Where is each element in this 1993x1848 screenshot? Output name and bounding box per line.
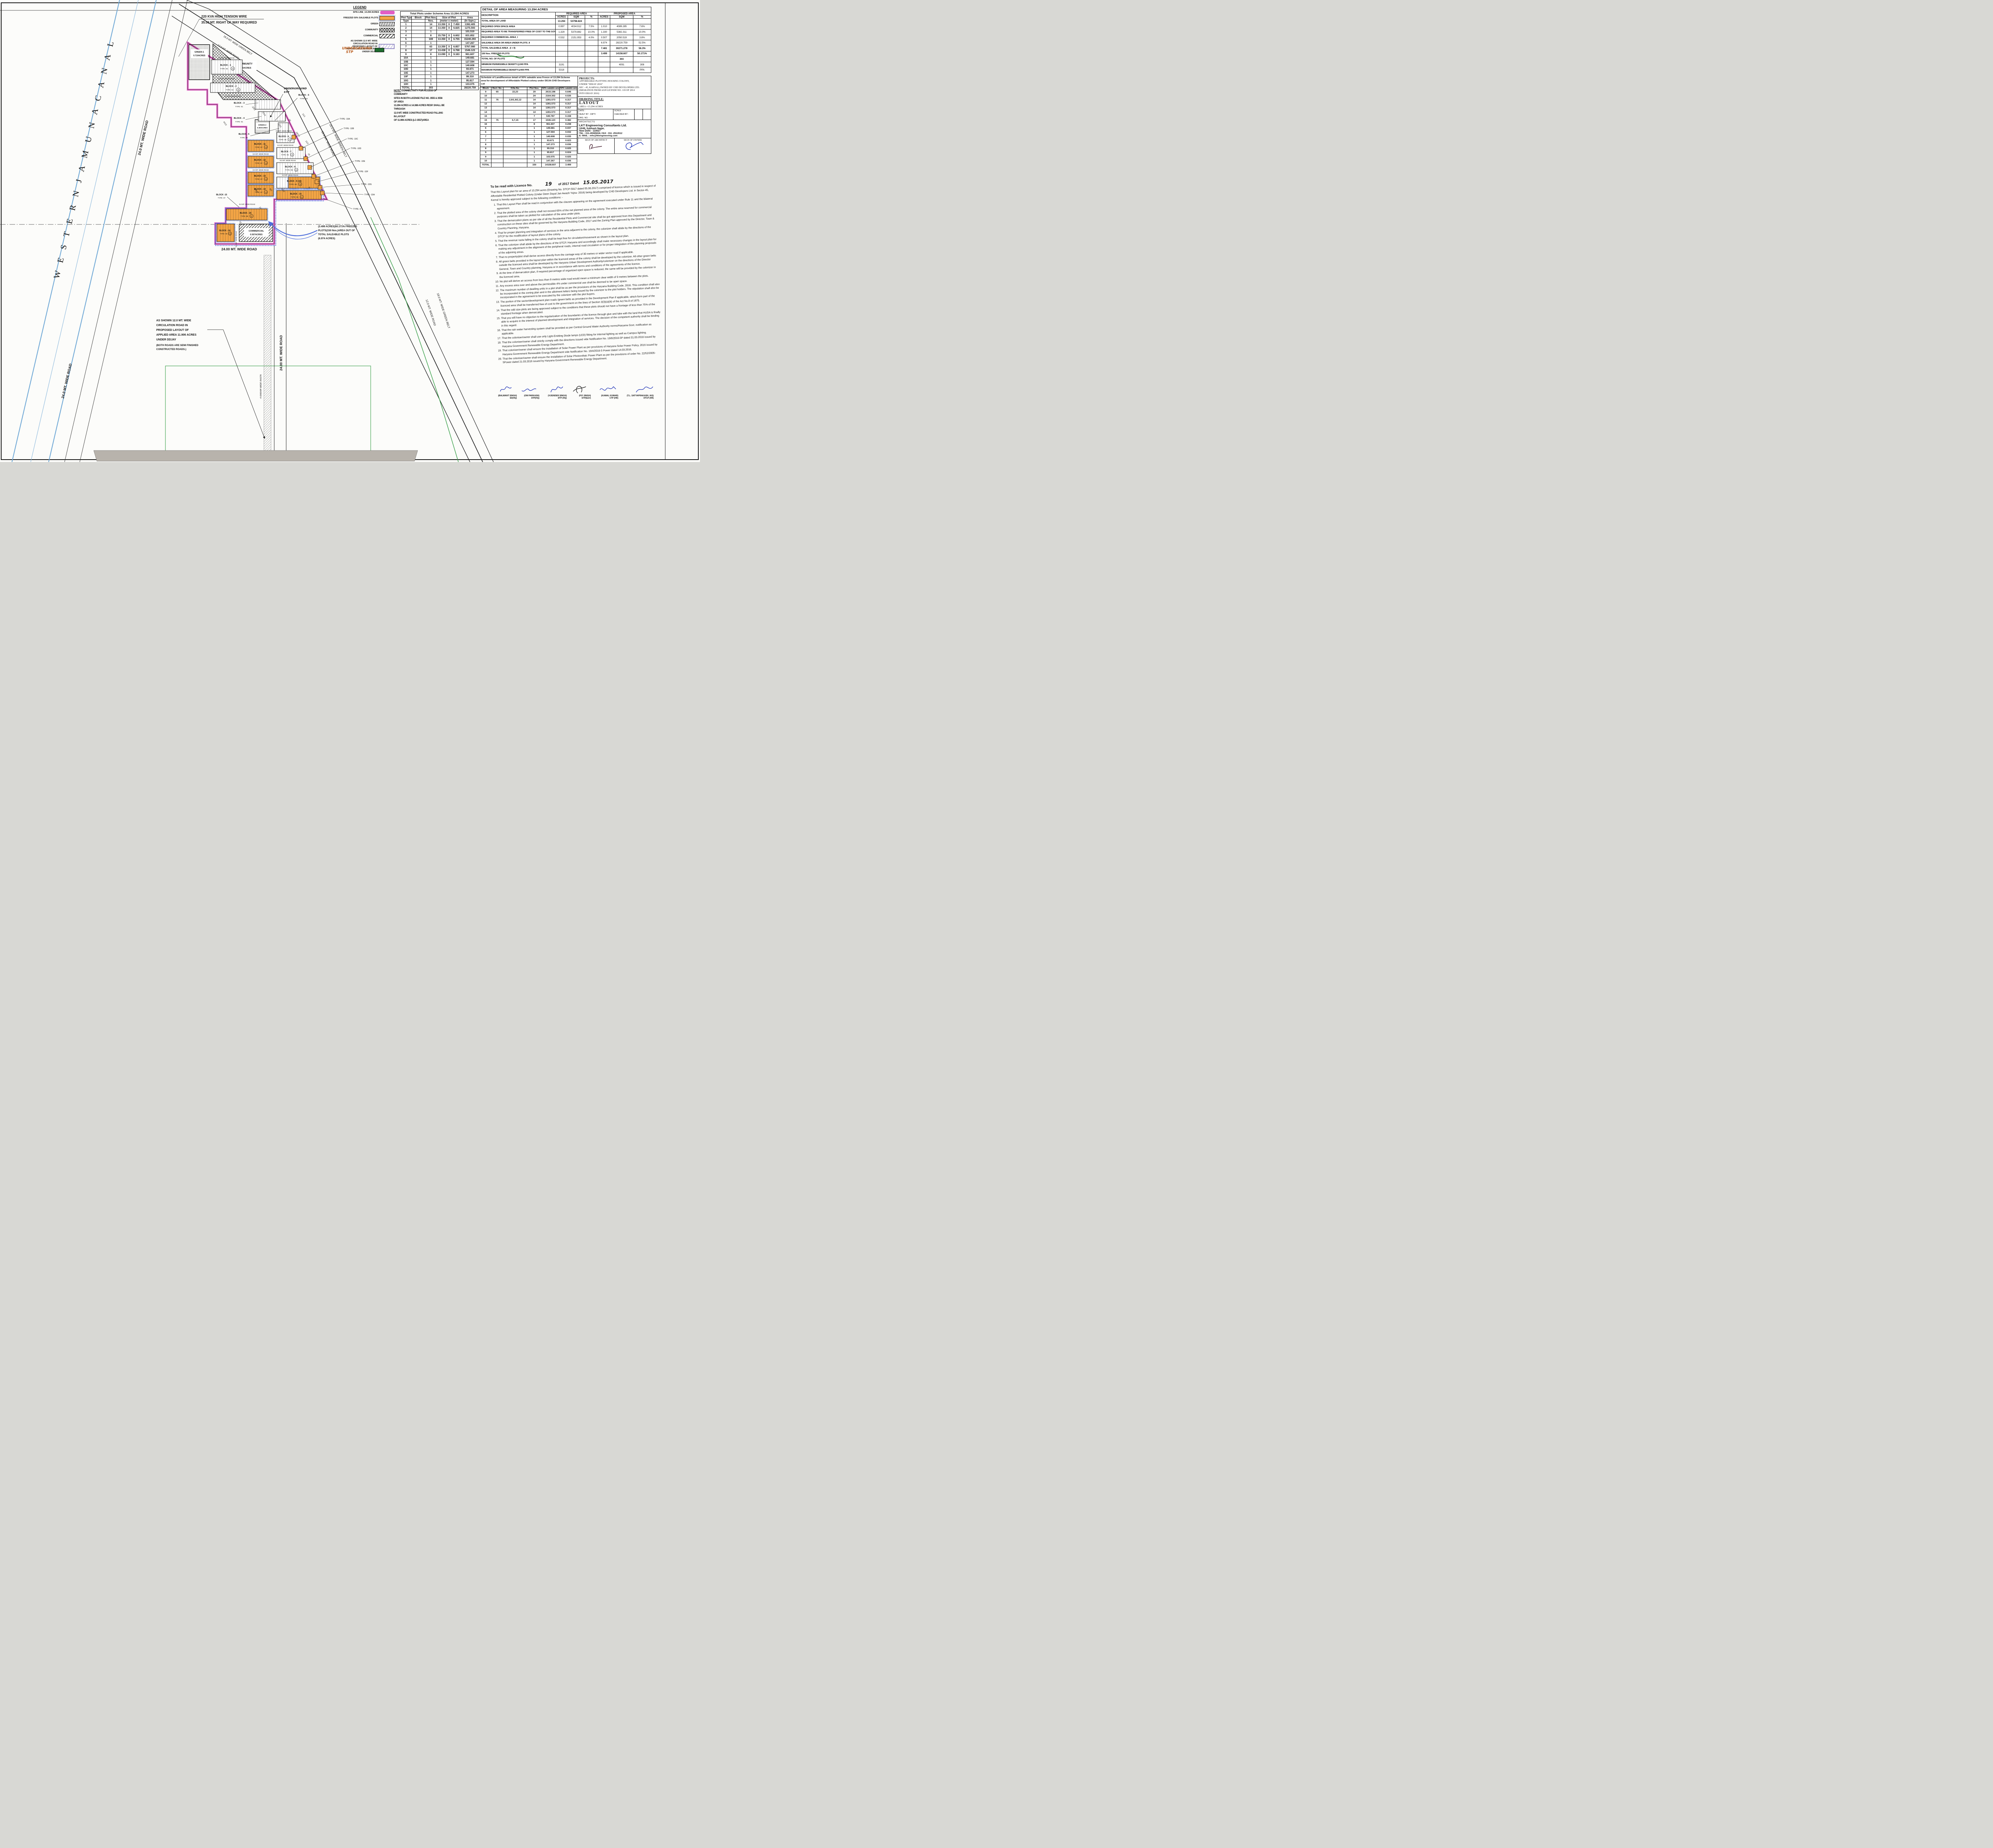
schedule-cell <box>491 147 503 151</box>
schedule-cell: 75 <box>491 118 503 122</box>
detail-value-cell <box>585 19 598 24</box>
plots-cell <box>411 26 425 30</box>
plots-cell <box>411 45 425 49</box>
schedule-row: 7193.6710.023 <box>480 139 577 143</box>
info-empty-cell-2 <box>643 109 651 120</box>
plots-cell: 10E <box>401 71 412 75</box>
svg-text:26: 26 <box>291 154 293 156</box>
plots-header-cell <box>411 20 425 23</box>
plots-cell: X <box>446 26 451 30</box>
plots-cell: 1 <box>425 67 437 71</box>
plots-cell: 1 <box>425 79 437 82</box>
svg-text:TYPE -05: TYPE -05 <box>291 196 299 198</box>
schedule-cell: 1 <box>527 143 542 147</box>
plots-cell <box>411 23 425 26</box>
detail-value-cell: 1.330 <box>598 29 610 35</box>
schedule-cell: 1281.573 <box>542 106 560 110</box>
svg-text:18: 18 <box>289 139 291 141</box>
schedule-cell: 0.317 <box>560 98 577 102</box>
svg-text:TYPE -10D: TYPE -10D <box>351 147 361 150</box>
detail-value-cell <box>568 51 585 57</box>
detail-desc-cell: REQUIRED OPEN SPACE AREA <box>481 24 556 29</box>
detail-row: REQUIRED OPEN SPACE AREA0.9974034.9127.5… <box>481 24 651 29</box>
schedule-cell: 14 <box>527 102 542 106</box>
plots-cell: 10C <box>401 64 412 67</box>
plots-cell: 1392.405 <box>461 23 478 26</box>
plots-cell <box>437 79 462 82</box>
legend-title: LEGEND <box>353 6 395 9</box>
licence-conditions: That this Layout Plan shall be read in c… <box>491 197 663 365</box>
schedule-cell: 1 <box>527 151 542 155</box>
detail-value-cell <box>585 45 598 51</box>
info-grid: DATE : DEALT BY : DIPTI DRG. NO. : SCALE… <box>578 109 651 120</box>
plots-cell: 1 <box>425 30 437 33</box>
signature-scribble <box>548 385 567 394</box>
signatory: (P.P. SINGH)STP(E&V) <box>567 385 591 399</box>
commercial-swatch <box>379 34 395 38</box>
schedule-cell: 15 <box>480 118 491 122</box>
svg-text:23: 23 <box>238 221 242 224</box>
plots-cell: 8 <box>425 53 437 56</box>
plots-cell: 9 <box>401 53 412 56</box>
detail-value-cell: 3.8% <box>633 35 651 40</box>
schedule-cell: 0.024 <box>560 151 577 155</box>
plots-cell: 10A <box>401 56 412 60</box>
plots-cell: 1 <box>425 83 437 86</box>
schedule-cell: 99.310 <box>542 147 560 151</box>
plots-cell <box>411 67 425 71</box>
detail-value-cell: 7.5% <box>585 24 598 29</box>
plots-cell: 961.607 <box>461 53 478 56</box>
signatory-role: SD(HQ) <box>493 397 517 399</box>
scale-field: SCALE : <box>614 110 633 112</box>
detail-value-cell <box>633 19 651 24</box>
legend-item-label: SITE LINE_13.294 ACRES <box>341 11 380 14</box>
schedule-cell: 103.075 <box>542 155 560 159</box>
schedule-cell: 9 <box>480 155 491 159</box>
svg-text:BLOCK - 9 (16): BLOCK - 9 (16) <box>287 180 302 183</box>
detail-value-cell <box>598 62 610 67</box>
drawing-title-label: DRAWING TITLE: <box>579 98 650 101</box>
schedule-row: 11762,9/1,9/2,12141281.5730.317 <box>480 98 577 102</box>
schedule-cell: 0.036 <box>560 159 577 163</box>
schedule-cell: 14 <box>527 106 542 110</box>
plots-cell <box>437 83 462 86</box>
plots-row: 9813.090X9.183961.607 <box>401 53 479 56</box>
detail-value-cell: 0.507 <box>598 35 610 40</box>
plots-cell: 14 <box>425 26 437 30</box>
date-field: DATE : <box>579 110 612 112</box>
schedule-row: 12141281.5730.317 <box>480 102 577 106</box>
schedule-cell: 140.608 <box>542 135 560 139</box>
schedule-cell: 0.036 <box>560 143 577 147</box>
svg-text:14: 14 <box>265 162 267 164</box>
schedule-cell <box>503 135 527 139</box>
plots-row: 10G195.817 <box>401 79 479 82</box>
plots-cell <box>437 41 462 45</box>
signature-scribble <box>498 385 517 394</box>
svg-text:TYPE -07: TYPE -07 <box>218 197 226 199</box>
plots-row: 10D193.671 <box>401 67 479 71</box>
schedule-cell: 147.273 <box>542 143 560 147</box>
plots-cell: X <box>446 45 451 49</box>
schedule-row: 96522,23292615.1980.646 <box>480 90 577 94</box>
legend-item: COMMUNITY <box>341 28 395 32</box>
schedule-table: BlockRect. No.Killa No.Plot Nos.50% sala… <box>480 87 577 167</box>
svg-text:TYPE -6: TYPE -6 <box>353 208 361 210</box>
schedule-cell: 7 <box>480 135 491 139</box>
plots-cell: 63 <box>425 45 437 49</box>
drawing-area: AREA =13.294 ACRES <box>579 105 650 108</box>
plots-cell: 1 <box>425 56 437 60</box>
schedule-cell: 6 <box>480 130 491 134</box>
schedule-cell <box>503 155 527 159</box>
signatory-role: STP(E&V) <box>567 397 591 399</box>
detail-header-cell: REQUIRED AREA <box>555 12 598 16</box>
detail-value-cell: 56.3% <box>633 45 651 51</box>
kva-line1: 220 KVA HIGH TENSION WIRE <box>201 15 247 18</box>
svg-text:TYPE -10G: TYPE -10G <box>361 183 372 186</box>
commercial-area: COMMERCIAL 0.507ACRES <box>239 224 273 242</box>
detail-value-cell <box>555 57 568 62</box>
projects-section: PROJECTS: AFFORDABLE PLOTTING HOUSING CO… <box>578 76 651 97</box>
detail-value-cell <box>633 57 651 62</box>
svg-text:BLOCK - 7: BLOCK - 7 <box>281 151 291 153</box>
detail-value-cell <box>585 57 598 62</box>
signatories-row: (BALWANT SINGH)SD(HQ)(OM PARKASH)ATP(HQ)… <box>493 385 654 399</box>
plots-cell: 5767.080 <box>461 45 478 49</box>
schedule-cell: 0.023 <box>560 139 577 143</box>
detail-row: REQUIRED COMMERCIAL AREA_I0.5322151.9534… <box>481 35 651 40</box>
licence-heading-text2: of 2017 Dated <box>558 181 579 186</box>
svg-text:TYPE -01: TYPE -01 <box>235 121 243 123</box>
svg-text:23: 23 <box>299 183 301 185</box>
schedule-cell <box>491 102 503 106</box>
licence-heading-text1: To be read with Licence No. <box>490 183 532 189</box>
schedule-row: 157640.7870.158 <box>480 114 577 118</box>
road12-label-c: 12.0 MT. WIDE ROAD <box>425 299 436 326</box>
plots-table: Total Plots under Scheme Area 13.294 ACR… <box>400 11 479 90</box>
legend-item-line: COMMUNITY <box>341 29 378 31</box>
schedule-cell: 640.787 <box>542 114 560 118</box>
svg-text:BLOCK - 12: BLOCK - 12 <box>254 159 266 161</box>
svg-text:9.0 MT. WIDE ROAD: 9.0 MT. WIDE ROAD <box>253 169 269 171</box>
schedule-row: 91103.0750.025 <box>480 155 577 159</box>
plots-cell: 7 <box>401 45 412 49</box>
schedule-row: 14141281.5730.317 <box>480 110 577 114</box>
svg-text:AS SHOWN 12.0 MT. WIDE: AS SHOWN 12.0 MT. WIDE <box>156 319 191 322</box>
plots-cell: 127.594 <box>461 60 478 63</box>
detail-value-cell <box>585 67 598 73</box>
plots-cell: 6.602 <box>452 34 462 37</box>
signature-scribble <box>520 385 539 394</box>
plots-cell: 3 <box>401 30 412 33</box>
legend-item-label: COMMERCIAL <box>341 35 379 37</box>
rasta-label: 4 KARAM WIDE RASTA <box>260 374 262 399</box>
road24-vert-label: 24.00 MT. WIDE ROAD <box>279 335 283 371</box>
sign-owner-box: SIGN OF OWNER <box>614 138 651 154</box>
plots-cell: 9.183 <box>452 53 462 56</box>
schedule-cell: 0.158 <box>560 114 577 118</box>
plots-cell: 13.350 <box>437 23 447 26</box>
plots-cell: X <box>446 53 451 56</box>
schedule-row: 15756,7,15171546.1230.382 <box>480 118 577 122</box>
plots-cell <box>411 34 425 37</box>
dealt-by-field: DEALT BY : DIPTI <box>579 113 612 116</box>
detail-value-cell <box>568 57 585 62</box>
schedule-cell: 16 <box>480 122 491 126</box>
note-line: 12.0 MT. WIDE CONSTRUCTED ROAD FALLING I… <box>394 112 446 119</box>
schedule-cell: 93.671 <box>542 139 560 143</box>
schedule-cell <box>503 143 527 147</box>
detail-value-cell <box>568 45 585 51</box>
plots-header-cell: Plot Type <box>401 16 412 20</box>
rasta-strip <box>264 255 271 452</box>
green-tick <box>497 51 525 61</box>
svg-text:BLOCK - 13: BLOCK - 13 <box>254 175 266 177</box>
plots-row: 4815.750X6.602831.852 <box>401 34 479 37</box>
schedule-header-cell: Block <box>480 87 491 90</box>
plots-cell: 28220.759 <box>461 86 478 90</box>
community-swatch <box>379 28 395 32</box>
detail-desc-cell: TOTAL AREA OF LAND <box>481 19 556 24</box>
plots-cell: 14 <box>425 23 437 26</box>
projects-line: UNDER "DDJAY 2016" <box>579 83 650 87</box>
svg-text:14: 14 <box>265 178 267 180</box>
schedule-cell <box>503 102 527 106</box>
svg-text:9.0 MT. WIDE ROAD: 9.0 MT. WIDE ROAD <box>239 203 255 205</box>
svg-text:(BOTH ROADS ARE SEMI FINISHED: (BOTH ROADS ARE SEMI FINISHED <box>156 344 199 347</box>
plots-cell: 1 <box>425 64 437 67</box>
svg-text:21/1: 21/1 <box>301 113 306 118</box>
signatory-role: DTCP (HR) <box>618 397 654 399</box>
svg-text:24: 24 <box>301 196 303 198</box>
legend-item-label: FREEZED 50% SALEABLE PLOTS <box>341 17 379 20</box>
svg-text:BLOCK - 5: BLOCK - 5 <box>299 94 309 96</box>
svg-text:TYPE -08: TYPE -08 <box>240 215 248 217</box>
detail-value-cell <box>585 51 598 57</box>
detail-value-cell <box>585 62 598 67</box>
schedule-cell <box>503 163 527 167</box>
schedule-cell <box>503 110 527 114</box>
architect-email: E- MAIL : info@lktengineering.com <box>579 135 650 137</box>
plots-row: 21413.350X6.8251275.593 <box>401 26 479 30</box>
svg-text:TYPE -07: TYPE -07 <box>255 146 263 148</box>
svg-text:BLOCK - 6: BLOCK - 6 <box>279 136 289 138</box>
schedule-cell <box>491 122 503 126</box>
legend-item: FREEZED 50% SALEABLE PLOTS <box>341 16 395 20</box>
schedule-cell: 2164.302 <box>542 94 560 98</box>
schedule-cell <box>491 159 503 163</box>
commercial-area-label: 0.507ACRES <box>250 234 263 236</box>
schedule-cell: 65 <box>491 90 503 94</box>
green2-label: GREEN-2 <box>258 124 267 126</box>
legend-stp-handnote: UNDERGROUND STP <box>342 47 372 55</box>
detail-value-cell: 10.0% <box>633 29 651 35</box>
schedule-cell: 1546.123 <box>542 118 560 122</box>
road12-label-b: 12.0 MT. WIDE ROAD <box>320 131 335 157</box>
svg-text:14: 14 <box>238 89 240 91</box>
plots-cell: 8 <box>401 49 412 52</box>
plots-cell: 10G <box>401 79 412 82</box>
plots-cell: 1 <box>425 71 437 75</box>
legend-item-line: CIRCULATION ROAD IN <box>341 43 377 45</box>
plots-cell: 1275.593 <box>461 26 478 30</box>
schedule-header-cell: Plot Nos. <box>527 87 542 90</box>
legend-item-line: AS SHOWN 12.0 MT. WIDE <box>341 40 377 43</box>
plots-cell: 101.510 <box>461 30 478 33</box>
plots-cell: 1546.123 <box>461 49 478 52</box>
detail-value-cell: PPA <box>633 67 651 73</box>
svg-text:BLOCK - 11: BLOCK - 11 <box>254 143 266 145</box>
schedule-row: 81147.2730.036 <box>480 143 577 147</box>
plots-cell <box>411 64 425 67</box>
svg-text:9.0 MT. WIDE ROAD: 9.0 MT. WIDE ROAD <box>280 159 296 161</box>
plots-cell: 6 <box>401 41 412 45</box>
detail-value-cell: 2151.953 <box>568 35 585 40</box>
detail-header-cell: SQM <box>568 16 585 19</box>
plots-header-cell: (meter x meter) <box>437 20 462 23</box>
schedule-heading-line: Schedule of Land/Revenue detail of 50% s… <box>481 77 578 80</box>
legend-item-label: COMMUNITY <box>341 29 379 31</box>
schedule-cell: 2,9/1,9/2,12 <box>503 98 527 102</box>
plots-header-cell: (In Sqm.) <box>461 20 478 23</box>
detail-value-cell: 4.0% <box>585 35 598 40</box>
detail-value-cell <box>598 57 610 62</box>
detail-value-cell: 7.481 <box>598 45 610 51</box>
detail-header-cell: ACRES <box>598 16 610 19</box>
schedule-row: TOTAL15014158.6073.499 <box>480 163 577 167</box>
svg-text:9.0 MT. WIDE ROAD: 9.0 MT. WIDE ROAD <box>218 57 234 59</box>
schedule-cell: 3.499 <box>560 163 577 167</box>
detail-value-cell <box>568 67 585 73</box>
detail-value-cell: 0.532 <box>555 35 568 40</box>
plots-row: 10B1127.594 <box>401 60 479 63</box>
svg-text:APPLIED AREA 11.906 ACRES: APPLIED AREA 11.906 ACRES <box>156 334 197 336</box>
architects-section: ARCHITECTS LKT Engineering Consultants L… <box>578 120 651 138</box>
plots-cell: 6.857 <box>452 45 462 49</box>
schedule-cell: 149.681 <box>542 126 560 130</box>
svg-text:TYPE -05: TYPE -05 <box>220 68 228 70</box>
detail-header-cell: ACRES <box>555 16 568 19</box>
plots-cell: 13.350 <box>437 45 447 49</box>
plots-row: 10C1140.608 <box>401 64 479 67</box>
plots-cell <box>437 60 462 63</box>
schedule-cell <box>503 151 527 155</box>
schedule-header-cell: 50% salable area in Sqm <box>542 87 560 90</box>
schedule-row: 8199.3100.025 <box>480 147 577 151</box>
detail-value-cell: 5318 <box>555 67 568 73</box>
svg-text:BLOCK - 5: BLOCK - 5 <box>239 133 250 136</box>
licence-no-handwritten: 19 <box>545 181 552 187</box>
detail-value-cell: 5382.311 <box>610 29 633 35</box>
svg-text:PROPOSED LAYOUT OF: PROPOSED LAYOUT OF <box>156 329 189 332</box>
plots-cell <box>437 56 462 60</box>
plots-cell <box>411 83 425 86</box>
detail-table-grid: DESCRIPTIONREQUIRED AREAPROPOSED AREAACR… <box>481 12 651 73</box>
plots-cell: 1 <box>425 75 437 79</box>
green2-area: 0.300ACRES <box>257 127 267 129</box>
plots-cell <box>437 64 462 67</box>
licence-block: To be read with Licence No. 19 of 2017 D… <box>490 177 663 366</box>
detail-header-cell: SQM <box>610 16 633 19</box>
schedule-cell: 1281.573 <box>542 110 560 114</box>
svg-text:(6.974 ACRES): (6.974 ACRES) <box>318 237 335 240</box>
plots-cell: 13.350 <box>437 37 447 41</box>
plots-cell: 6.825 <box>452 26 462 30</box>
plots-row: 516913.350X6.75515240.293 <box>401 37 479 41</box>
svg-text:08: 08 <box>229 233 231 235</box>
schedule-cell: 9 <box>480 151 491 155</box>
svg-text:9.0 MT. WIDE ROAD: 9.0 MT. WIDE ROAD <box>225 95 241 97</box>
plots-header-cell: Nos. <box>425 20 437 23</box>
schedule-cell <box>491 155 503 159</box>
plots-cell <box>437 71 462 75</box>
schedule-cell: 0.238 <box>560 122 577 126</box>
schedule-heading-line: Ltd <box>481 83 578 86</box>
schedule-cell <box>503 94 527 98</box>
detail-value-cell: 6.974 <box>598 40 610 46</box>
sign-architect-box: SIGN OF ARCHITECT <box>578 138 614 154</box>
schedule-row: 168961.6070.238 <box>480 122 577 126</box>
schedule-cell: 1 <box>527 126 542 130</box>
svg-text:TYPE -07: TYPE -07 <box>255 162 263 164</box>
svg-text:TYPE -03: TYPE -03 <box>300 98 308 100</box>
drawing-sheet: W E S T E R N J A M U N A C A N A L 24.0… <box>0 0 700 462</box>
schedule-cell <box>491 114 503 118</box>
schedule-cell: 24 <box>527 94 542 98</box>
plots-cell: 6.768 <box>452 49 462 52</box>
detail-value-cell: 30271.278 <box>610 45 633 51</box>
schedule-cell: 10 <box>480 159 491 163</box>
detail-value-cell <box>568 62 585 67</box>
sign-row: SIGN OF ARCHITECT SIGN OF OWNER <box>578 138 651 154</box>
svg-text:18: 18 <box>232 68 234 70</box>
svg-text:BLOCK - 1: BLOCK - 1 <box>220 64 231 67</box>
schedule-cell: 76 <box>491 98 503 102</box>
svg-text:14: 14 <box>265 191 267 193</box>
signatory: (BALWANT SINGH)SD(HQ) <box>493 385 517 399</box>
svg-text:BLOCK - 10: BLOCK - 10 <box>290 193 302 195</box>
svg-text:9.0 MT. WIDE ROAD: 9.0 MT. WIDE ROAD <box>218 78 234 80</box>
schedule-cell: 0.025 <box>560 147 577 151</box>
detail-value-cell <box>555 45 568 51</box>
schedule-cell <box>491 163 503 167</box>
siteline-swatch <box>380 11 395 14</box>
detail-value-cell <box>598 19 610 24</box>
schedule-cell: 1 <box>527 147 542 151</box>
schedule-cell: 0.025 <box>560 155 577 159</box>
architects-label: ARCHITECTS <box>579 121 650 123</box>
detail-value-cell <box>598 67 610 73</box>
schedule-cell: 14 <box>527 110 542 114</box>
projects-line: INTO DDJAY 2016) <box>579 92 650 96</box>
schedule-cell <box>491 110 503 114</box>
detail-row: REQUIRED AREA TO BE TRANSFERRED FREE OF … <box>481 29 651 35</box>
svg-text:BLOCK - 8: BLOCK - 8 <box>285 166 295 168</box>
schedule-cell: 15 <box>480 114 491 118</box>
schedule-cell: 1 <box>527 139 542 143</box>
legend-item: GREEN <box>341 22 395 26</box>
projects-label: PROJECTS: <box>579 77 650 80</box>
svg-text:17: 17 <box>251 215 253 217</box>
detail-desc-cell: REQUIRED COMMERCIAL AREA_I <box>481 35 556 40</box>
schedule-cell: 0.382 <box>560 118 577 122</box>
title-block: PROJECTS: AFFORDABLE PLOTTING HOUSING CO… <box>578 76 651 154</box>
schedule-cell <box>503 147 527 151</box>
plots-cell: 10H <box>401 83 412 86</box>
plots-cell: 93.671 <box>461 67 478 71</box>
